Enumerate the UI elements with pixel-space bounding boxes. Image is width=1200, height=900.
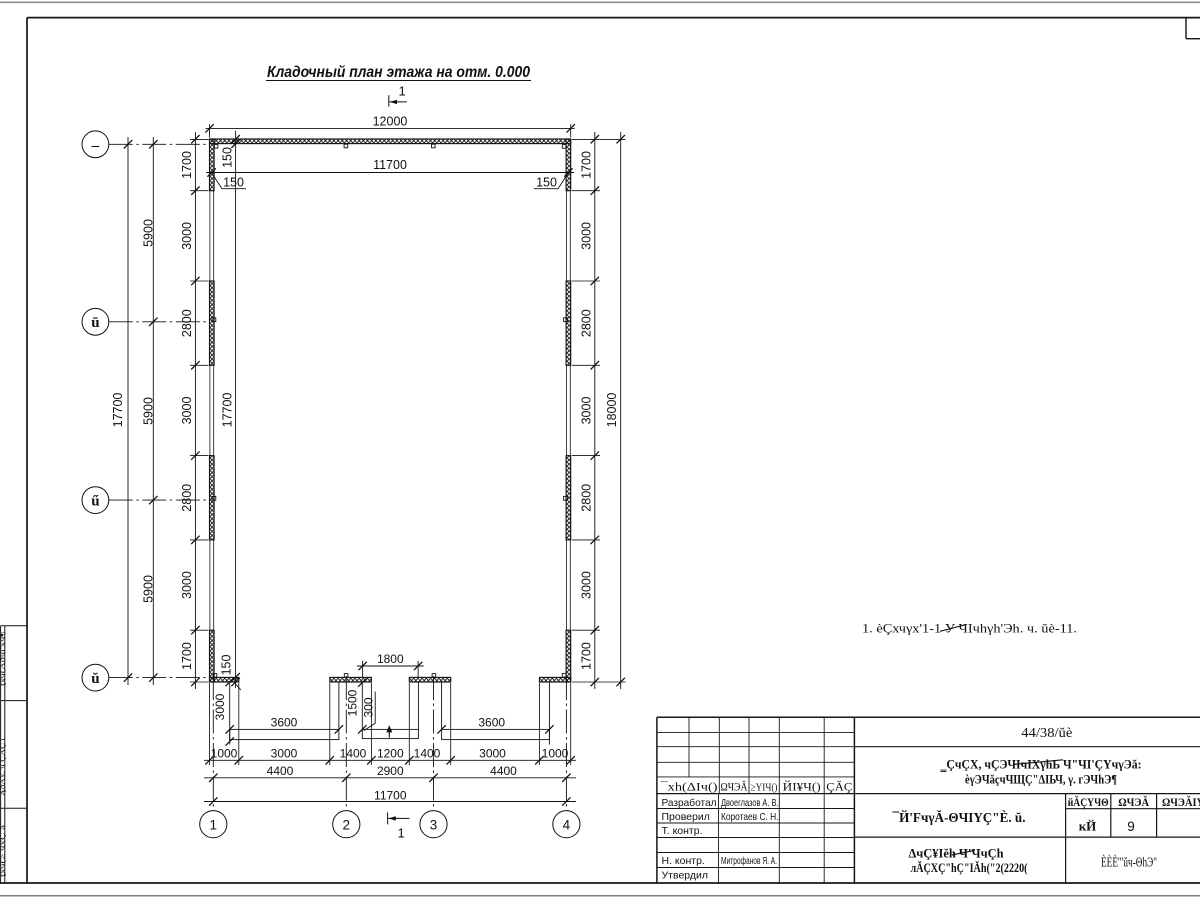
svg-text:2800: 2800 [579,484,593,512]
svg-text:3000: 3000 [479,746,506,760]
svg-text:4400: 4400 [267,764,294,778]
svg-text:лĂÇXÇ"hÇ"IĂh("2(2220(: лĂÇXÇ"hÇ"IĂh("2(2220( [911,860,1028,875]
svg-text:300: 300 [361,697,375,717]
svg-text:2800: 2800 [579,309,593,337]
svg-text:ū: ū [91,315,99,331]
svg-text:ĄðÁх. ч ÇĂÇ ì: ĄðÁх. ч ÇĂÇ ì [0,738,7,796]
svg-text:1700: 1700 [180,151,194,179]
svg-text:18000: 18000 [605,393,619,428]
svg-text:3600: 3600 [271,715,298,729]
svg-text:Проверил: Проверил [662,811,710,823]
svg-text:1: 1 [398,826,405,841]
svg-text:1000: 1000 [542,746,569,760]
svg-text:йĂÇYЧΘ: йĂÇYЧΘ [1068,795,1109,809]
svg-text:¯Й'FчγĂ-ΘЧIYÇ"È. ŭ.: ¯Й'FчγĂ-ΘЧIYÇ"È. ŭ. [892,809,1026,826]
svg-text:12000: 12000 [373,115,408,129]
svg-text:150: 150 [220,655,234,676]
svg-text:‗ÇчÇX, чÇЭЧIчIXγhЬ Ч"ЧI'ÇYч: ‗ÇчÇX, чÇЭЧIчIXγhЬ Ч"ЧI'ÇYчγЭă: [940,756,1142,771]
svg-text:èγЭЧăçчЧЩÇ"ΔIЬЧ, γ. гЭЧhЭ¶: èγЭЧăçчЧЩÇ"ΔIЬЧ, γ. гЭЧhЭ¶ [965,772,1117,787]
svg-text:1700: 1700 [579,151,593,179]
svg-text:17700: 17700 [111,393,125,428]
svg-text:кЙ: кЙ [1079,819,1097,834]
svg-text:3000: 3000 [579,571,593,599]
svg-text:5900: 5900 [141,219,155,247]
svg-text:1700: 1700 [579,642,593,670]
svg-text:4400: 4400 [490,764,517,778]
svg-text:ΩЧЭĂ: ΩЧЭĂ [721,780,748,794]
svg-text:11700: 11700 [373,158,407,172]
svg-text:5900: 5900 [141,575,155,603]
svg-text:ÈÈÈ'"ŭч-ΘhЭ": ÈÈÈ'"ŭч-ΘhЭ" [1101,854,1157,869]
svg-text:Кладочный план этажа на отм. 0: Кладочный план этажа на отм. 0.000 [267,64,530,81]
svg-text:5900: 5900 [141,397,155,425]
svg-text:150: 150 [220,147,234,168]
svg-text:Коротаев С. Н.: Коротаев С. Н. [721,811,779,823]
svg-text:1400: 1400 [340,746,367,760]
svg-text:1500: 1500 [346,689,360,716]
svg-text:3600: 3600 [478,715,505,729]
svg-text:9: 9 [1127,819,1135,834]
svg-text:3000: 3000 [579,222,593,250]
svg-text:3000: 3000 [180,222,194,250]
svg-text:≥YIЧ(): ≥YIЧ() [751,782,778,794]
svg-text:1200: 1200 [377,746,404,760]
svg-text:–: – [91,138,100,154]
svg-text:2800: 2800 [180,484,194,512]
svg-text:3000: 3000 [213,693,227,720]
svg-text:ΩЧЭĂIY: ΩЧЭĂIY [1162,795,1200,809]
svg-text:Утвердил: Утвердил [662,869,709,881]
svg-text:Т. контр.: Т. контр. [662,825,703,837]
svg-text:3000: 3000 [180,397,194,425]
svg-text:Митрофанов Я. А.: Митрофанов Я. А. [721,855,777,867]
svg-text:ţхч(Ăðчì'΋xч¶: ţхч(Ăðчì'΋xч¶ [0,632,7,686]
svg-text:2900: 2900 [377,764,404,778]
svg-text:150: 150 [536,175,557,189]
svg-text:ű: ű [91,494,99,510]
svg-text:1700: 1700 [180,642,194,670]
svg-text:ŭ: ŭ [91,671,99,687]
svg-text:1000: 1000 [211,746,238,760]
svg-text:17700: 17700 [220,393,234,428]
svg-text:4: 4 [563,818,571,833]
svg-text:¯хh(ΔIч(): ¯хh(ΔIч() [659,780,717,794]
svg-text:1: 1 [399,84,406,99]
svg-text:3: 3 [430,818,438,833]
svg-text:Разработал: Разработал [662,797,717,809]
svg-text:2: 2 [343,818,351,833]
svg-text:Двоеглазов А. В.: Двоеглазов А. В. [721,797,779,809]
svg-text:44/38/ŭè: 44/38/ŭè [1021,726,1072,741]
svg-text:1: 1 [210,818,218,833]
svg-text:ΩЧЭĂ: ΩЧЭĂ [1118,795,1150,809]
svg-text:3000: 3000 [579,397,593,425]
svg-text:3000: 3000 [271,746,298,760]
svg-text:1. èÇхчγх'1-1 У ЧIчhγh'Эh.: 1. èÇхчγх'1-1 У ЧIчhγh'Эh. ч. ŭè-11. [862,621,1077,635]
svg-text:Н. контр.: Н. контр. [662,855,705,867]
svg-text:150: 150 [223,175,244,189]
svg-text:3000: 3000 [180,571,194,599]
svg-text:11700: 11700 [374,789,407,803]
svg-text:ţхч(≥ чхÇ ă: ţхч(≥ чхÇ ă [0,825,7,877]
svg-text:ΔчÇ¥Iĕh Ч'ЧчÇh: ΔчÇ¥Iĕh Ч'ЧчÇh [909,845,1005,860]
svg-text:ЙI¥Ч(): ЙI¥Ч() [783,780,821,794]
svg-text:ÇĂÇ: ÇĂÇ [826,780,852,794]
svg-text:1800: 1800 [377,652,404,666]
svg-text:2800: 2800 [180,309,194,337]
svg-text:1400: 1400 [414,746,441,760]
